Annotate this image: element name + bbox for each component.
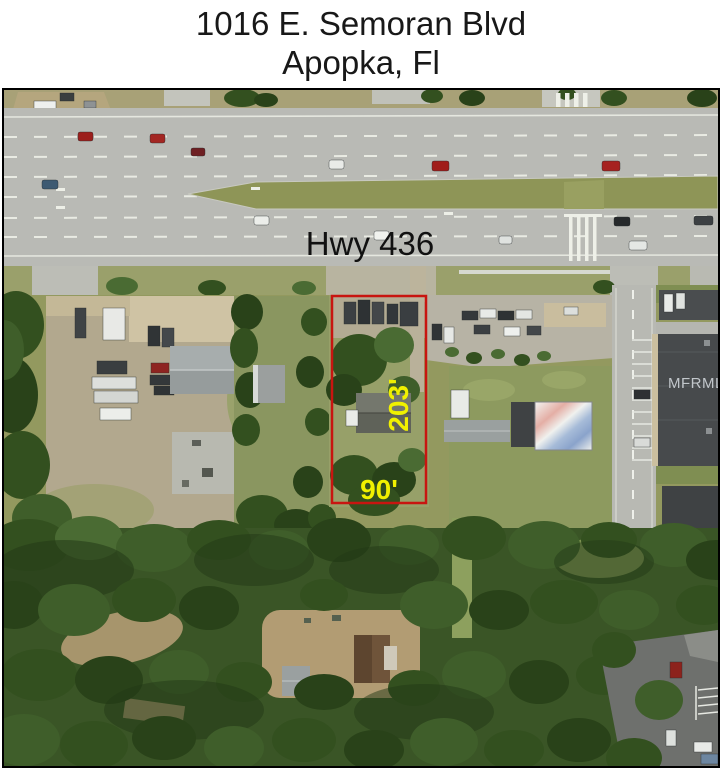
aerial-photo: Hwy 436 203' 90' MFRMLS (4, 90, 718, 766)
verge-south (4, 266, 718, 296)
highway-label: Hwy 436 (306, 225, 434, 262)
mid-green-strip (230, 294, 336, 541)
concrete-pad (172, 432, 234, 494)
small-grey-building (253, 365, 285, 403)
title-line-1: 1016 E. Semoran Blvd (0, 0, 722, 43)
commercial-lot-east (426, 295, 614, 536)
parcel-depth-label: 203' (383, 378, 414, 431)
listing-title: 1016 E. Semoran Blvd Apopka, Fl (0, 0, 722, 86)
strip-mall-roof (658, 334, 718, 466)
grey-outbuilding (444, 420, 510, 442)
mls-watermark: MFRMLS (668, 375, 718, 392)
parcel-width-label: 90' (360, 474, 398, 505)
title-line-2: Apopka, Fl (0, 43, 722, 82)
aerial-photo-frame: Hwy 436 203' 90' MFRMLS (2, 88, 720, 768)
south-woods (4, 516, 718, 766)
metal-building (170, 346, 234, 394)
flag-roof-building (535, 402, 592, 450)
white-van (346, 410, 358, 426)
dark-building (511, 402, 537, 447)
